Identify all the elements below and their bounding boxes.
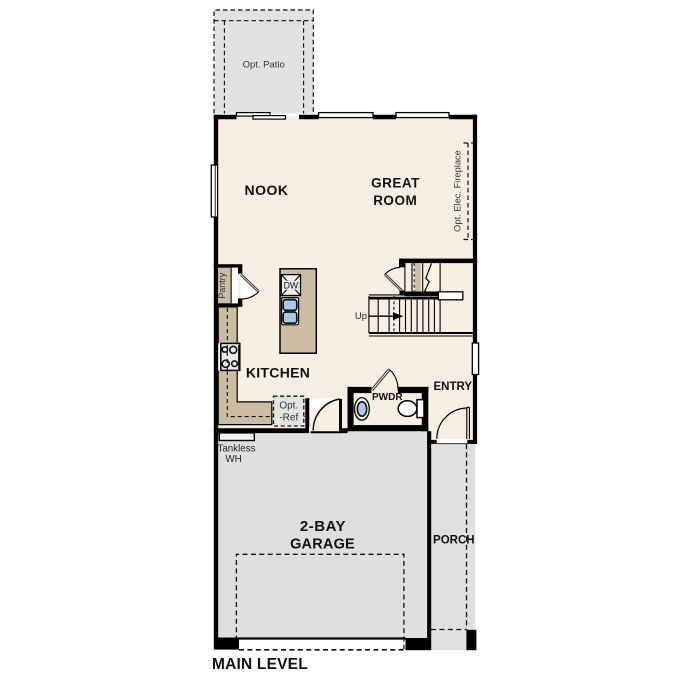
svg-text:Opt. Elec. Fireplace: Opt. Elec. Fireplace xyxy=(452,150,462,232)
svg-text:PORCH: PORCH xyxy=(433,535,475,547)
svg-text:KITCHEN: KITCHEN xyxy=(246,365,310,381)
svg-text:Up: Up xyxy=(355,311,367,322)
svg-text:-Ref: -Ref xyxy=(279,413,298,424)
svg-text:ENTRY: ENTRY xyxy=(434,381,473,393)
svg-text:GARAGE: GARAGE xyxy=(290,537,355,553)
svg-text:Opt.: Opt. xyxy=(279,401,298,412)
svg-text:GREAT: GREAT xyxy=(371,175,420,190)
svg-text:ROOM: ROOM xyxy=(373,193,417,208)
svg-text:MAIN LEVEL: MAIN LEVEL xyxy=(212,656,308,673)
svg-text:DW: DW xyxy=(284,281,299,291)
svg-text:Pantry: Pantry xyxy=(217,272,227,299)
svg-text:Opt. Patio: Opt. Patio xyxy=(243,60,285,71)
svg-text:2-BAY: 2-BAY xyxy=(300,518,346,535)
svg-text:NOOK: NOOK xyxy=(245,182,289,198)
svg-text:PWDR: PWDR xyxy=(372,392,403,403)
svg-text:WH: WH xyxy=(225,454,241,465)
